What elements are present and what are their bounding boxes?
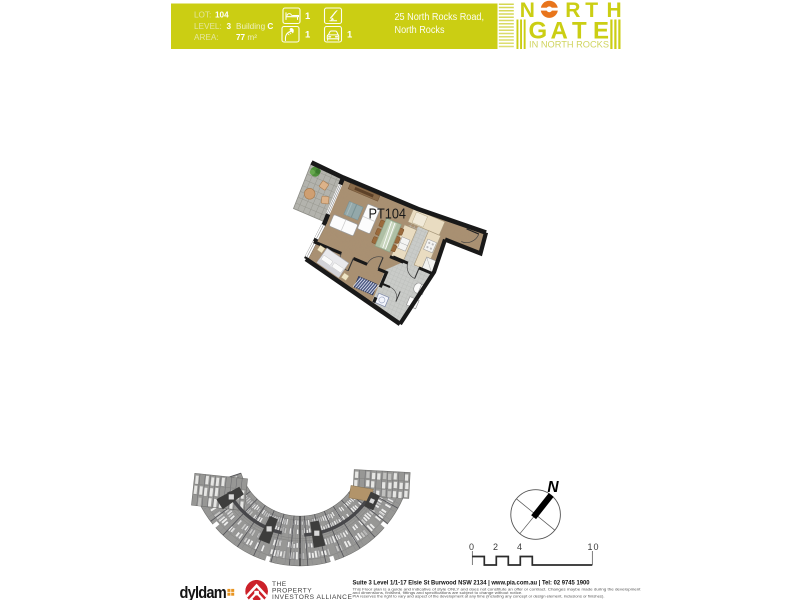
svg-text:IN NORTH ROCKS: IN NORTH ROCKS (529, 40, 609, 50)
svg-text:77 m²: 77 m² (236, 33, 257, 42)
svg-text:1: 1 (305, 11, 311, 22)
svg-text:10: 10 (588, 542, 600, 552)
svg-text:4: 4 (517, 542, 523, 552)
svg-text:dyldam: dyldam (180, 583, 227, 600)
svg-text:PT104: PT104 (369, 207, 407, 223)
svg-text:LEVEL:: LEVEL: (194, 22, 222, 31)
svg-text:North Rocks: North Rocks (395, 25, 445, 36)
svg-text:Suite 3 Level 1/1-17 Elsie St: Suite 3 Level 1/1-17 Elsie St Burwood NS… (353, 580, 590, 587)
svg-text:2: 2 (493, 542, 499, 552)
svg-text:N: N (547, 479, 559, 496)
svg-text:1: 1 (305, 30, 311, 41)
svg-text:3: 3 (227, 22, 232, 31)
svg-text:PIA reserves the right to vary: PIA reserves the right to vary and aspec… (353, 595, 605, 599)
svg-text:AREA:: AREA: (194, 33, 219, 42)
svg-text:1: 1 (347, 30, 353, 41)
svg-text:104: 104 (215, 11, 229, 20)
svg-text:25 North Rocks Road,: 25 North Rocks Road, (395, 12, 485, 23)
svg-text:0: 0 (469, 542, 475, 552)
svg-text:INVESTORS ALLIANCE: INVESTORS ALLIANCE (272, 594, 352, 600)
svg-text:LOT:: LOT: (194, 11, 211, 20)
svg-text:Building C: Building C (236, 22, 273, 31)
